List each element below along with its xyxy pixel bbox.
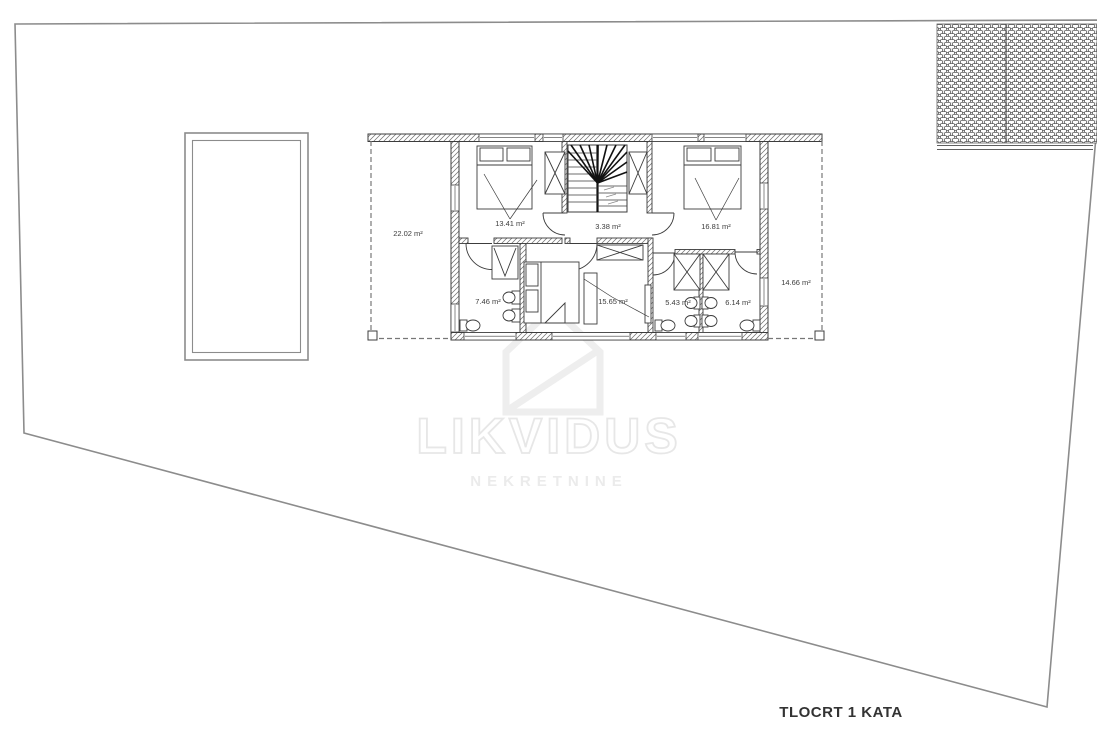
floorplan-page: LIKVIDUS NEKRETNINE — [0, 0, 1097, 736]
toilet — [655, 320, 675, 331]
door-bathroom-left — [466, 244, 492, 270]
staircase — [568, 145, 627, 212]
sink — [685, 315, 700, 327]
sink — [503, 309, 520, 322]
door-hall-right — [652, 213, 674, 235]
watermark-brand: LIKVIDUS — [416, 408, 681, 464]
wardrobe-top-left — [545, 152, 565, 194]
wardrobe-top-right — [629, 152, 647, 194]
wardrobe-hall — [597, 245, 643, 260]
sink — [702, 297, 717, 309]
floorplan-drawing: LIKVIDUS NEKRETNINE — [0, 0, 1097, 736]
watermark-subtitle: NEKRETNINE — [470, 473, 628, 490]
room-label-bathroom-left: 7.46 m² — [475, 297, 501, 306]
roof-plan — [937, 24, 1097, 150]
door-bathroom-middle — [653, 253, 675, 275]
window-bottom-room — [645, 285, 651, 323]
door-hall-left — [543, 213, 565, 235]
toilet — [460, 320, 480, 331]
room-label-terrace-left: 22.02 m² — [393, 229, 423, 238]
plot-boundary — [15, 20, 1097, 707]
wall-top — [368, 134, 822, 142]
room-label-bathroom-middle: 5.43 m² — [665, 298, 691, 307]
sink — [702, 315, 717, 327]
bed-top-right — [684, 146, 741, 209]
shower-middle — [674, 254, 700, 290]
bed-bottom — [524, 262, 579, 323]
shower-right — [703, 254, 729, 290]
shower-left — [492, 246, 518, 279]
terrace-post-left — [368, 331, 377, 340]
room-label-bedroom-top-right: 16.81 m² — [701, 222, 731, 231]
room-label-bedroom-bottom: 15.65 m² — [598, 297, 628, 306]
terrace-right-outline — [768, 141, 822, 339]
floor-title: TLOCRT 1 KATA — [779, 704, 902, 721]
toilet — [740, 320, 760, 331]
room-label-bathroom-right: 6.14 m² — [725, 298, 751, 307]
room-label-stair-hall: 3.38 m² — [595, 222, 621, 231]
terrace-left-outline — [371, 141, 451, 339]
room-label-bedroom-top-left: 13.41 m² — [495, 219, 525, 228]
sink — [503, 291, 520, 304]
room-label-terrace-right: 14.66 m² — [781, 278, 811, 287]
terrace-post-right — [815, 331, 824, 340]
door-bathroom-right — [735, 252, 757, 274]
swimming-pool — [185, 133, 308, 360]
